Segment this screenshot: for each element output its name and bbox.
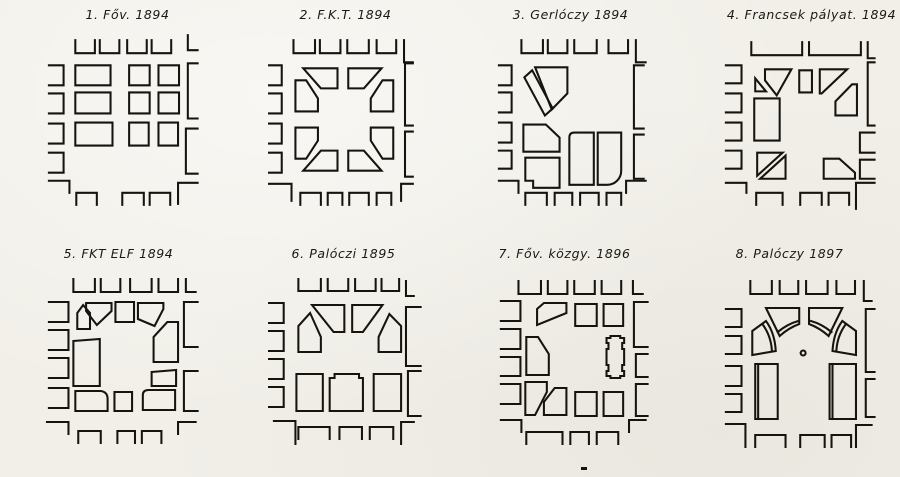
panel-title-6: 6. Palóczi 1895 — [231, 246, 456, 261]
panel-title-4: 4. Francsek pályat. 1894 — [699, 7, 900, 22]
plan-drawing-fov-1894 — [0, 0, 225, 239]
plan-drawing-paloczi-1895 — [225, 239, 450, 477]
plan-panel-7: 7. Főv. közgy. 1896 — [450, 239, 675, 477]
panel-title-3: 3. Gerlóczy 1894 — [458, 7, 683, 22]
plan-panel-3: 3. Gerlóczy 1894 — [450, 0, 675, 239]
scanned-plan-sheet: 1. Főv. 1894 2. F.K.T. 1894 3. Gerlóczy … — [0, 0, 900, 477]
plan-panel-1: 1. Főv. 1894 — [0, 0, 225, 239]
plan-drawing-paloczy-1897 — [675, 239, 900, 477]
plan-panel-6: 6. Palóczi 1895 — [225, 239, 450, 477]
panel-title-5: 5. FKT ELF 1894 — [6, 246, 231, 261]
plan-panel-5: 5. FKT ELF 1894 — [0, 239, 225, 477]
plan-panel-4: 4. Francsek pályat. 1894 — [675, 0, 900, 239]
plan-drawing-fkt-elf-1894 — [0, 239, 225, 477]
plan-panel-2: 2. F.K.T. 1894 — [225, 0, 450, 239]
plan-drawing-gerloczy-1894 — [450, 0, 675, 239]
plan-panel-8: 8. Palóczy 1897 — [675, 239, 900, 477]
panel-title-1: 1. Főv. 1894 — [15, 7, 240, 22]
plan-drawing-francsek-1894 — [675, 0, 900, 239]
panel-title-8: 8. Palóczy 1897 — [677, 246, 900, 261]
page-mark — [581, 467, 587, 470]
panel-title-2: 2. F.K.T. 1894 — [233, 7, 458, 22]
plan-drawing-fkt-1894 — [225, 0, 450, 239]
plan-drawing-fov-kozgy-1896 — [450, 239, 675, 477]
panel-title-7: 7. Főv. közgy. 1896 — [452, 246, 677, 261]
